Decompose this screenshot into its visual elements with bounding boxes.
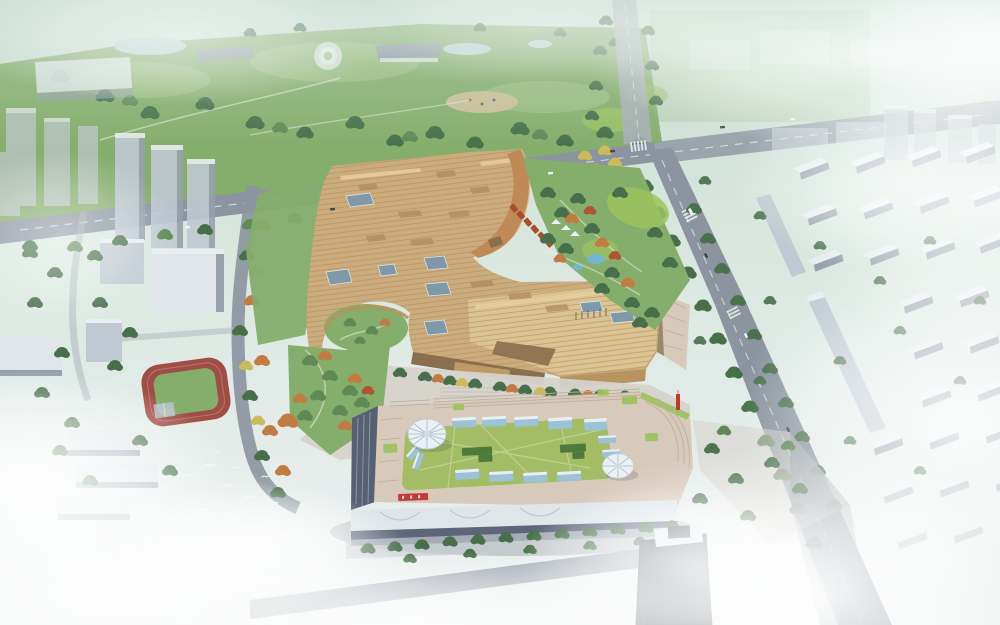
podium-sign (398, 493, 428, 501)
rendering-canvas: Aerial bird's-eye architectural renderin… (0, 0, 1000, 625)
courtyard-garden (324, 304, 408, 352)
podium-west-wall (351, 406, 378, 510)
garden-pond (587, 254, 605, 264)
